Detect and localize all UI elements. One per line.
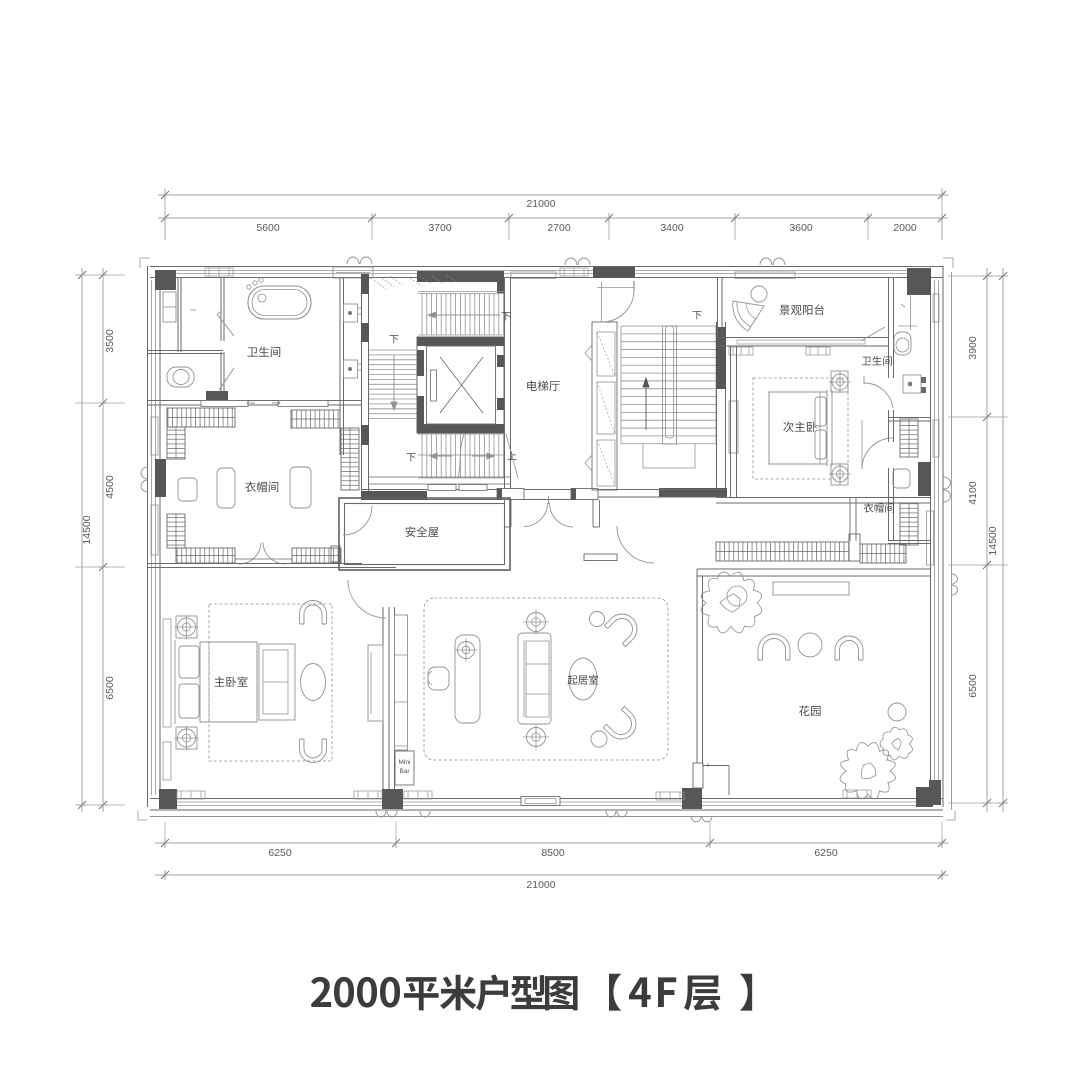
svg-text:4100: 4100	[967, 481, 979, 505]
svg-text:21000: 21000	[526, 879, 555, 891]
svg-text:3500: 3500	[104, 329, 116, 353]
svg-text:3900: 3900	[967, 336, 979, 360]
svg-text:8500: 8500	[541, 847, 565, 859]
svg-text:6250: 6250	[814, 847, 838, 859]
svg-text:6500: 6500	[967, 674, 979, 698]
svg-text:3700: 3700	[428, 222, 452, 234]
svg-text:2700: 2700	[547, 222, 571, 234]
svg-text:Bar: Bar	[399, 768, 410, 775]
svg-text:6250: 6250	[268, 847, 292, 859]
svg-text:3400: 3400	[660, 222, 684, 234]
svg-text:6500: 6500	[104, 676, 116, 700]
svg-text:14500: 14500	[81, 515, 93, 544]
svg-text:14500: 14500	[987, 526, 999, 555]
svg-text:4500: 4500	[104, 475, 116, 499]
svg-text:2000: 2000	[893, 222, 917, 234]
svg-text:Mini: Mini	[399, 759, 411, 766]
svg-text:21000: 21000	[526, 198, 555, 210]
svg-text:5600: 5600	[256, 222, 280, 234]
svg-text:3600: 3600	[789, 222, 813, 234]
